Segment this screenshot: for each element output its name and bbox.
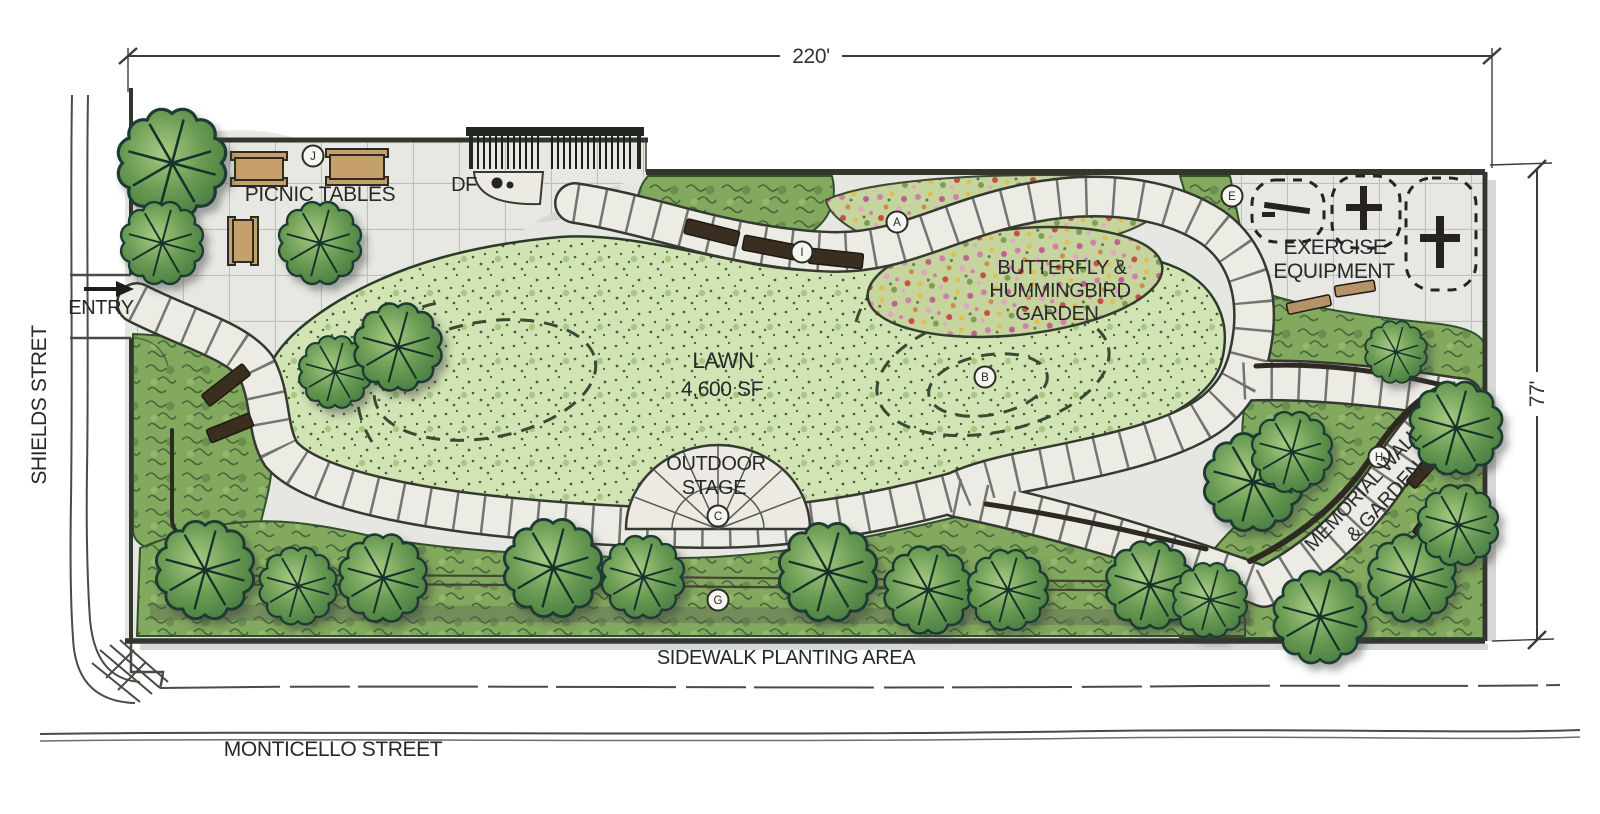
- exercise-label-2: EQUIPMENT: [1273, 260, 1395, 283]
- picnic-table: [326, 149, 388, 185]
- entry-label: ENTRY: [68, 297, 133, 319]
- drinking-fountain-label: DF: [451, 174, 477, 196]
- lawn-label-2: 4,600 SF: [681, 378, 763, 401]
- stage-label-2: STAGE: [682, 477, 746, 499]
- monticello-street-label: MONTICELLO STREET: [224, 738, 443, 761]
- svg-text:I: I: [800, 247, 803, 259]
- fountain-icon: [492, 178, 503, 189]
- exercise-label-1: EXERCISE: [1284, 236, 1387, 259]
- stage-label-1: OUTDOOR: [666, 453, 765, 475]
- marker-j: J: [303, 146, 324, 167]
- marker-e: E: [1222, 186, 1243, 207]
- svg-text:J: J: [310, 151, 316, 163]
- marker-c: C: [708, 506, 729, 527]
- svg-text:E: E: [1228, 191, 1236, 203]
- picnic-table: [228, 217, 258, 265]
- picnic-table: [231, 152, 287, 186]
- marker-g: G: [708, 590, 729, 611]
- picnic-tables-label: PICNIC TABLES: [245, 183, 396, 206]
- marker-i: I: [792, 242, 813, 263]
- svg-text:C: C: [714, 511, 722, 523]
- marker-a: A: [887, 212, 908, 233]
- marker-b: B: [975, 367, 996, 388]
- right-dimension-label: 77': [1526, 381, 1549, 407]
- site-plan-canvas: 220' 77': [0, 0, 1600, 814]
- lawn-label-1: LAWN: [692, 348, 753, 373]
- svg-text:B: B: [981, 372, 989, 384]
- shields-street-label: SHIELDS STRET: [28, 325, 51, 485]
- butterfly-garden-label-1: BUTTERFLY &: [997, 257, 1127, 279]
- butterfly-garden-label-2: HUMMINGBIRD: [989, 280, 1130, 302]
- svg-text:G: G: [714, 595, 723, 607]
- sidewalk-area-label: SIDEWALK PLANTING AREA: [657, 647, 916, 669]
- top-dimension-label: 220': [792, 45, 829, 68]
- butterfly-garden-label-3: GARDEN: [1015, 303, 1098, 325]
- svg-text:A: A: [893, 217, 901, 229]
- site-plan-svg: 220' 77': [0, 0, 1600, 814]
